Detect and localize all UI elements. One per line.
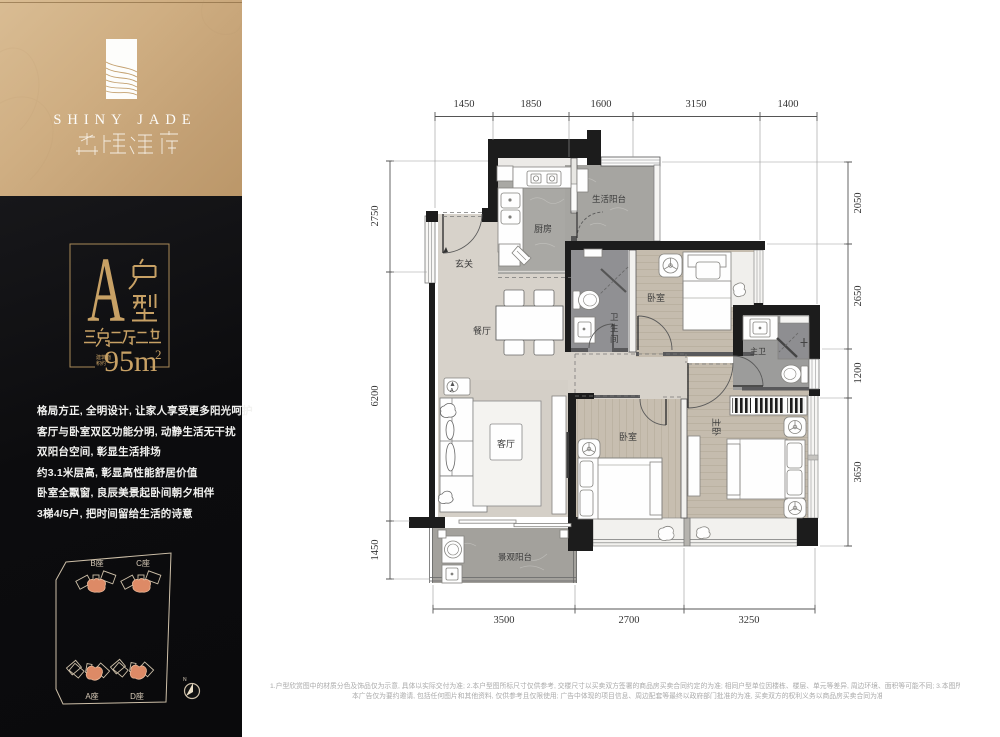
svg-text:1600: 1600 xyxy=(591,99,612,110)
svg-text:卧室: 卧室 xyxy=(647,292,665,303)
svg-text:生: 生 xyxy=(610,323,619,333)
svg-text:A: A xyxy=(450,388,454,394)
svg-text:主卫: 主卫 xyxy=(750,346,766,356)
svg-text:1450: 1450 xyxy=(454,99,475,110)
svg-text:2050: 2050 xyxy=(853,193,864,214)
svg-text:2650: 2650 xyxy=(853,286,864,307)
svg-text:卫: 卫 xyxy=(610,312,619,322)
svg-text:玄关: 玄关 xyxy=(455,258,473,269)
svg-text:1850: 1850 xyxy=(521,99,542,110)
svg-text:生活阳台: 生活阳台 xyxy=(592,194,626,204)
svg-text:客厅: 客厅 xyxy=(497,438,515,449)
svg-text:厨房: 厨房 xyxy=(534,223,552,234)
svg-text:3250: 3250 xyxy=(739,615,760,626)
svg-text:3500: 3500 xyxy=(494,615,515,626)
svg-text:主卧: 主卧 xyxy=(711,418,722,436)
svg-text:间: 间 xyxy=(610,334,619,344)
svg-text:1450: 1450 xyxy=(370,540,381,561)
svg-text:1400: 1400 xyxy=(778,99,799,110)
svg-text:3150: 3150 xyxy=(686,99,707,110)
svg-text:2750: 2750 xyxy=(370,206,381,227)
svg-text:卧室: 卧室 xyxy=(619,431,637,442)
svg-text:景观阳台: 景观阳台 xyxy=(498,552,532,562)
svg-text:6200: 6200 xyxy=(370,386,381,407)
svg-text:1200: 1200 xyxy=(853,363,864,384)
svg-text:餐厅: 餐厅 xyxy=(473,325,491,336)
svg-text:3650: 3650 xyxy=(853,462,864,483)
svg-text:2700: 2700 xyxy=(619,615,640,626)
